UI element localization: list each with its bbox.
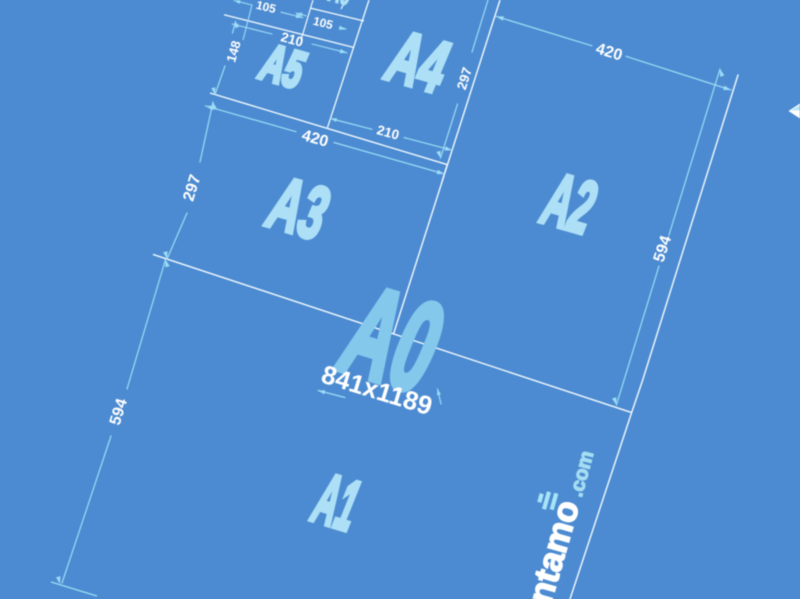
- svg-text:105: 105: [255, 0, 278, 16]
- svg-text:A2: A2: [534, 155, 605, 250]
- svg-text:594: 594: [107, 397, 131, 428]
- svg-text:297: 297: [180, 173, 204, 204]
- svg-text:420: 420: [594, 40, 625, 64]
- svg-text:A6: A6: [325, 0, 354, 11]
- svg-text:105: 105: [312, 14, 335, 33]
- svg-text:148: 148: [223, 39, 243, 64]
- svg-text:A5: A5: [254, 33, 311, 100]
- svg-text:594: 594: [651, 234, 675, 265]
- svg-text:210: 210: [375, 122, 401, 142]
- svg-text:A3: A3: [259, 160, 337, 256]
- svg-text:A4: A4: [378, 14, 457, 109]
- svg-text:420: 420: [300, 127, 330, 151]
- svg-text:A1: A1: [304, 457, 367, 546]
- svg-text:.com: .com: [565, 449, 598, 500]
